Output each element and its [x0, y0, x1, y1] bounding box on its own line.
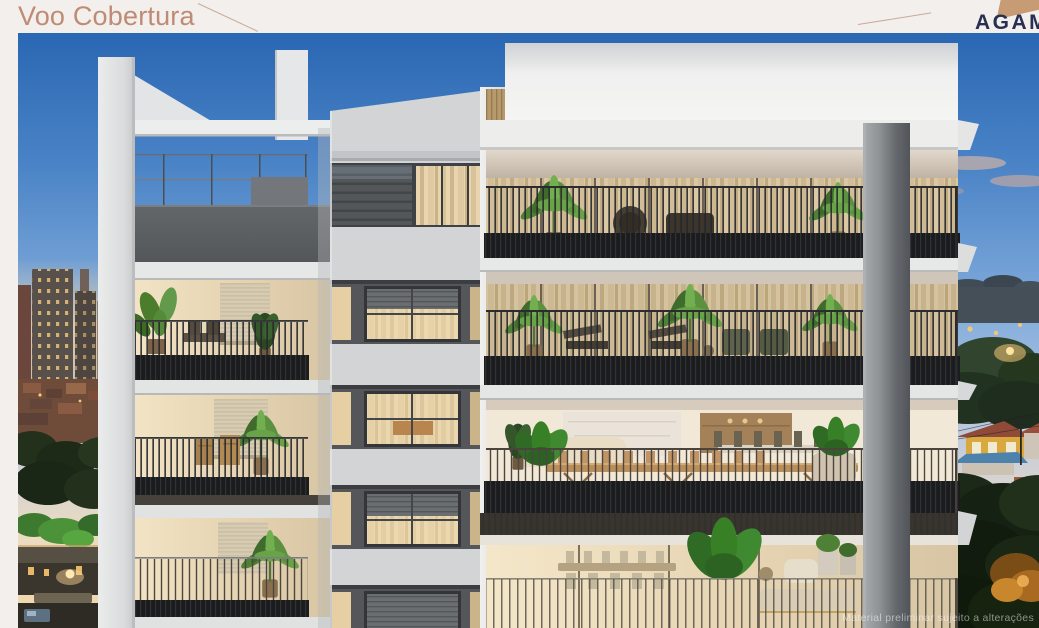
building-render: [18, 33, 1039, 628]
rooftop-parapet: [113, 205, 330, 262]
brand-logo: AGAM: [973, 0, 1039, 33]
tower-window-band-5: [330, 585, 495, 628]
decor-line-left: [198, 3, 258, 32]
left-balcony-2: [113, 395, 330, 518]
decor-line-right: [858, 12, 931, 25]
left-balcony-3: [113, 518, 330, 628]
building-render-image: Material preliminar sujeito a alterações: [18, 33, 1039, 628]
tower-window-band-2: [330, 280, 495, 344]
tower-window-band-4: [330, 485, 495, 549]
roof-slab: [505, 43, 958, 120]
tower-window-band-3: [330, 385, 495, 449]
brand-logo-text: AGAM: [975, 11, 1039, 33]
corner-pillar: [98, 57, 135, 628]
concrete-column: [863, 123, 910, 628]
page-header: Voo Cobertura AGAM: [0, 0, 1039, 33]
left-balcony-1: [113, 280, 330, 395]
disclaimer-watermark: Material preliminar sujeito a alterações: [842, 612, 1034, 624]
tower-window-band-1: [330, 163, 495, 227]
right-tower: [480, 43, 979, 628]
page-title: Voo Cobertura: [18, 1, 195, 32]
middle-tower: [330, 89, 495, 628]
